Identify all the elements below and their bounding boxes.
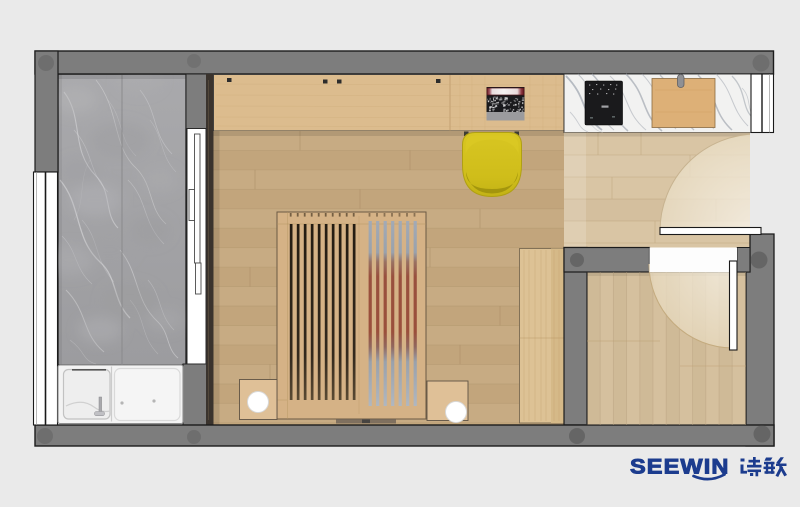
svg-text:SEEWIN: SEEWIN <box>630 455 730 479</box>
